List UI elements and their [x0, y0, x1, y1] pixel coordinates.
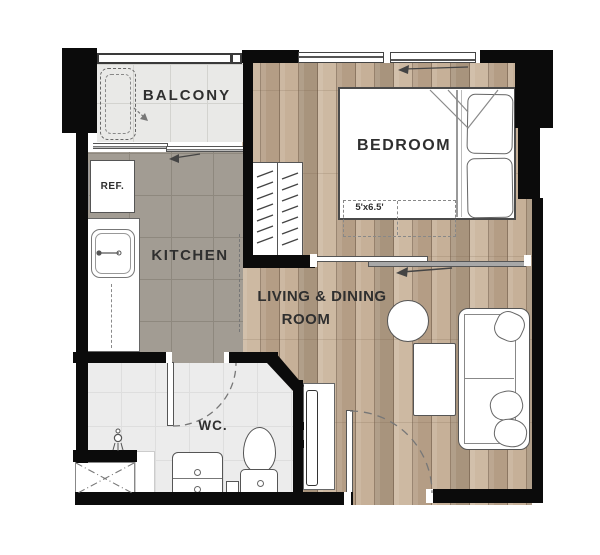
living-dining-label-line2: ROOM — [240, 311, 372, 328]
wardrobe-divider — [277, 163, 278, 256]
bedroom-sliding-door-panel — [368, 261, 526, 267]
balcony-railing — [97, 53, 242, 64]
refrigerator: REF. — [90, 160, 135, 213]
washing-machine-inner — [105, 74, 131, 134]
partition-jamb — [524, 255, 531, 266]
shower-shaft-icon — [75, 462, 135, 495]
sink-basin — [95, 233, 131, 274]
entrance-door-leaf — [346, 410, 353, 493]
living-dining-label-line1: LIVING & DINING — [240, 288, 404, 305]
toilet-flush-knob — [257, 480, 264, 487]
vanity-drawer-line — [173, 478, 222, 479]
wall-top-left-block — [62, 48, 97, 133]
wall-left — [76, 133, 88, 463]
vanity-knob — [194, 469, 201, 476]
wc-door-jamb — [224, 352, 229, 363]
coffee-table-icon — [413, 343, 456, 416]
wall-wc-right — [293, 380, 303, 502]
wall-right-step — [518, 128, 540, 199]
wc-door-jamb — [166, 352, 172, 363]
sofa-seat-divider — [464, 378, 514, 379]
sliding-door-panel — [89, 143, 168, 149]
bedroom-window — [298, 52, 384, 63]
railing-divider — [230, 55, 233, 62]
wc-label: WC. — [183, 418, 243, 433]
slider-jamb — [88, 142, 93, 152]
tv-console-icon — [303, 383, 335, 490]
wc-door-leaf — [167, 362, 174, 426]
refrigerator-label: REF. — [101, 181, 125, 192]
dimension-zone-divider — [397, 201, 398, 235]
window-glass-line — [391, 59, 475, 61]
tv-icon — [306, 390, 318, 486]
wall-under-wardrobe — [243, 255, 315, 268]
entrance-door-jamb — [344, 492, 351, 505]
window-glass-line — [299, 56, 383, 58]
bedroom-window — [390, 52, 476, 63]
wardrobe — [252, 162, 303, 257]
wall-kitchen-bedroom — [243, 53, 253, 267]
sliding-door-panel — [166, 146, 244, 152]
pillow-icon — [466, 158, 513, 219]
floor-plan: REF. 5'x6.5' — [0, 0, 600, 555]
bedroom-label: BEDROOM — [344, 137, 464, 155]
wall-bottom-left — [75, 492, 353, 505]
kitchen-label: KITCHEN — [130, 247, 250, 264]
wc-partition-ledge — [135, 451, 155, 495]
partition-jamb — [310, 254, 317, 267]
wall-shower — [73, 450, 137, 462]
pillow-icon — [466, 94, 513, 155]
balcony-label: BALCONY — [127, 87, 247, 104]
counter-dashed-line — [111, 284, 112, 348]
wall-wc-top — [73, 352, 172, 363]
wall-right — [532, 198, 543, 502]
sofa-icon — [458, 308, 530, 450]
bedroom-dimension-label: 5'x6.5' — [346, 201, 393, 214]
entrance-door-jamb — [426, 489, 433, 503]
wall-bottom-right — [428, 489, 543, 503]
wall-wc-top — [229, 352, 278, 363]
sofa-pillow-icon — [492, 417, 529, 450]
round-table-icon — [387, 300, 429, 342]
washing-machine-icon — [100, 68, 136, 140]
wall-top-right-corner — [515, 58, 553, 128]
toilet-icon — [243, 427, 276, 473]
kitchen-sink-icon — [91, 229, 135, 278]
